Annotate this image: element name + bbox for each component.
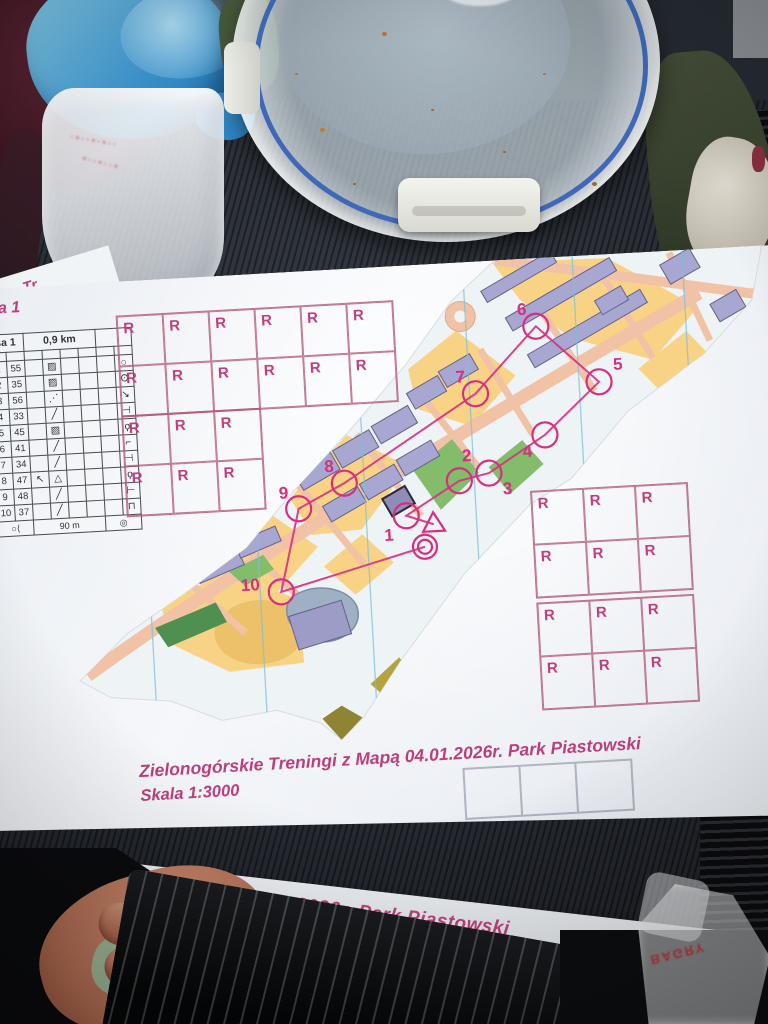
svg-text:5: 5 bbox=[613, 354, 624, 373]
course-name-cell: sa 1 bbox=[0, 333, 24, 353]
bag-print-line: ·•··•·•·· bbox=[69, 132, 119, 151]
empty-cell bbox=[519, 763, 578, 816]
punch-cell: R bbox=[300, 304, 349, 356]
red-fabric-bit bbox=[752, 146, 765, 172]
punch-grid-left-top: RRRRRR RRRRRR bbox=[116, 300, 399, 417]
orienteering-map-sheet: sa 1 sa 1 0,9 km 155▨○ 235▨ʘ 356⋰↘ 433╱⊣… bbox=[0, 243, 768, 863]
empty-cell bbox=[575, 760, 634, 813]
svg-text:9: 9 bbox=[278, 483, 289, 502]
empty-cell bbox=[463, 766, 522, 819]
punch-cell: R bbox=[125, 464, 174, 516]
punch-cell: R bbox=[592, 651, 647, 707]
svg-text:6: 6 bbox=[516, 300, 527, 319]
map-scale: Skala 1:3000 bbox=[140, 782, 240, 807]
svg-text:4: 4 bbox=[522, 442, 533, 462]
punch-cell: R bbox=[635, 483, 690, 539]
punch-cell: R bbox=[531, 489, 586, 545]
punch-cell: R bbox=[254, 306, 303, 358]
show-through-grid bbox=[462, 759, 635, 820]
punch-cell: R bbox=[638, 536, 693, 592]
punch-cell: R bbox=[644, 648, 699, 704]
punch-cell: R bbox=[586, 539, 641, 595]
punch-cell: R bbox=[349, 351, 398, 403]
svg-text:2: 2 bbox=[461, 446, 472, 465]
punch-grid-right-top: RRR RRR bbox=[530, 482, 694, 599]
punch-cell: R bbox=[214, 409, 263, 461]
punch-cell: R bbox=[163, 311, 212, 363]
punch-cell: R bbox=[540, 654, 595, 710]
svg-text:3: 3 bbox=[502, 479, 513, 498]
punch-grid-left-bottom: RRR RRR bbox=[121, 408, 266, 518]
latch-groove bbox=[412, 206, 526, 216]
svg-text:1: 1 bbox=[384, 526, 395, 545]
photo-scene: ·•··•·•·· •··•··• Tr ą 04.01.2026r. Park… bbox=[0, 0, 768, 1024]
punch-cell: R bbox=[534, 542, 589, 598]
punch-cell: R bbox=[168, 411, 217, 463]
bag-print-line: •··•··• bbox=[81, 154, 120, 174]
punch-cell: R bbox=[209, 309, 258, 361]
punch-cell: R bbox=[122, 414, 171, 466]
punch-cell: R bbox=[119, 364, 168, 416]
bag-red-print: BAGRY bbox=[649, 939, 707, 967]
punch-cell: R bbox=[641, 595, 696, 651]
punch-cell: R bbox=[589, 598, 644, 654]
punch-cell: R bbox=[171, 461, 220, 513]
lid-latch-tab bbox=[398, 178, 540, 232]
punch-cell: R bbox=[303, 354, 352, 406]
punch-cell: R bbox=[165, 361, 214, 413]
svg-text:8: 8 bbox=[324, 457, 335, 476]
svg-text:10: 10 bbox=[240, 575, 260, 595]
punch-grid-right-bottom: RRR RRR bbox=[536, 594, 700, 711]
background-corner bbox=[733, 0, 768, 58]
punch-cell: R bbox=[211, 359, 260, 411]
lid-latch-left bbox=[224, 42, 260, 114]
course-label: sa 1 bbox=[0, 299, 21, 319]
svg-text:7: 7 bbox=[455, 367, 466, 386]
punch-cell: R bbox=[257, 356, 306, 408]
punch-cell: R bbox=[117, 314, 166, 366]
punch-cell: R bbox=[346, 301, 395, 353]
punch-cell: R bbox=[537, 601, 592, 657]
crumbs bbox=[382, 32, 387, 36]
punch-cell: R bbox=[583, 486, 638, 542]
start-symbol: ○⟨ bbox=[0, 520, 34, 537]
punch-cell: R bbox=[217, 459, 266, 511]
